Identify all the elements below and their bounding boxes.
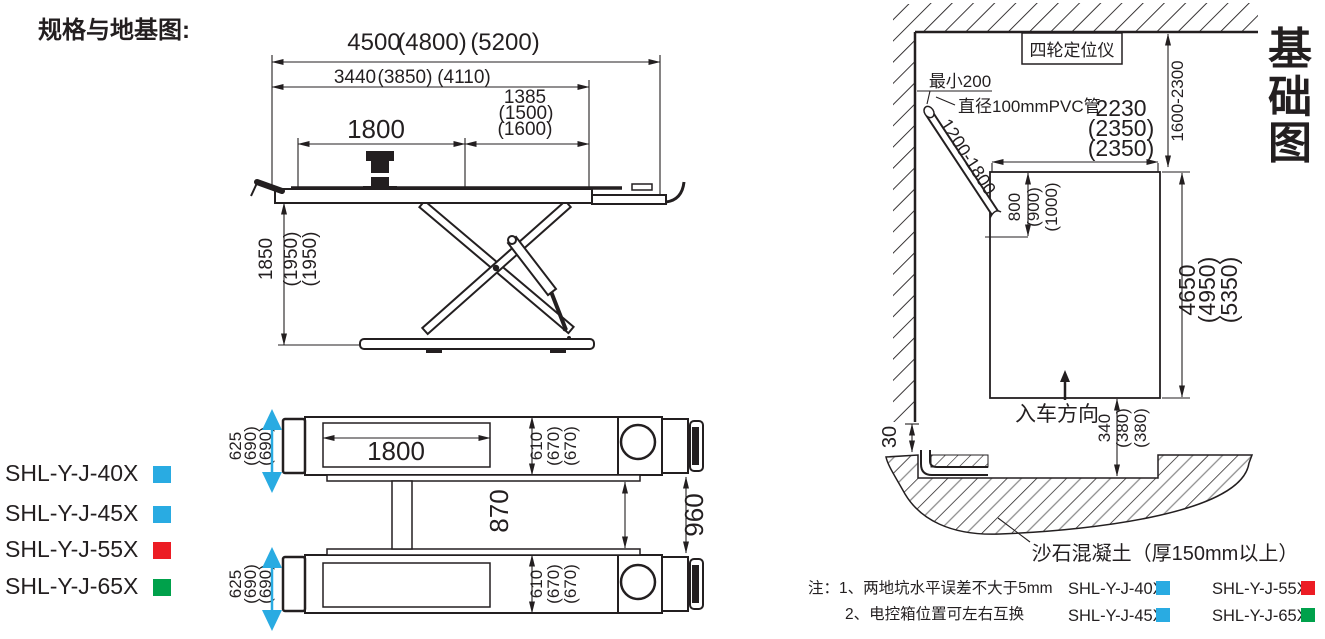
wheel-aligner-label: 四轮定位仪	[1030, 41, 1115, 60]
notes: 注：1、两地坑水平误差不大于5mm 2、电控箱位置可左右互换	[808, 579, 1053, 623]
foundation-title: 基 础 图	[1268, 25, 1312, 168]
dim-inner-gap: 870	[484, 489, 514, 532]
page-title: 规格与地基图:	[38, 17, 190, 44]
model-color-swatch	[153, 579, 171, 596]
foundation-view: 四轮定位仪 1200-1800 最小200 直径100mmPVC管 2230 (…	[808, 3, 1315, 625]
dim-platform-length: 1800	[347, 114, 405, 144]
dim-step: 30	[879, 426, 901, 448]
legend-label: SHL-Y-J-40X	[1068, 580, 1164, 598]
lift-cylinder-port	[621, 425, 655, 459]
legend-swatch	[1156, 608, 1170, 622]
right-approach-ramp	[592, 182, 684, 204]
dim-outer-gap: 960	[679, 493, 709, 536]
dim-pipe-drop-base: 800	[1005, 193, 1024, 221]
side-view: 4500 (4800) (5200) 3440 (3850) (4110) 13…	[251, 29, 684, 353]
embedded-duct-cover	[931, 455, 988, 467]
concrete-section	[886, 450, 1252, 542]
legend-swatch	[1301, 581, 1315, 595]
dim-height-var2: (1950)	[300, 232, 321, 287]
dim-pit-width-var2: (2350)	[1088, 135, 1154, 161]
legend-swatch	[1156, 581, 1170, 595]
dim-overall-var1: (4800)	[397, 29, 466, 56]
dim-overall-base: 4500	[347, 29, 400, 56]
pvc-pipe-label: 直径100mmPVC管	[958, 97, 1101, 116]
entry-direction-arrow-icon	[1060, 370, 1070, 400]
plan-platform-bottom	[283, 555, 703, 613]
legend-label: SHL-Y-J-45X	[1068, 607, 1164, 625]
pipe-length-range: 1200-1800	[936, 115, 1000, 198]
model-label: SHL-Y-J-45X	[5, 500, 138, 526]
dim-pit-length-var2: (5350)	[1216, 257, 1242, 323]
model-color-swatch	[153, 466, 171, 483]
platform-slab	[275, 189, 592, 203]
model-color-swatch	[153, 542, 171, 559]
dim-overall-var2: (5200)	[470, 29, 539, 56]
dim-pit-to-trench-var1: (380)	[1113, 408, 1132, 448]
plan-platform-top	[283, 417, 703, 475]
dim-pit-to-trench-base: 340	[1095, 414, 1114, 442]
dim-ramp-var2: (1600)	[498, 119, 553, 140]
model-list: SHL-Y-J-40X SHL-Y-J-45X SHL-Y-J-55X SHL-…	[5, 460, 171, 599]
dim-frame-base: 3440	[334, 67, 376, 88]
legend-label: SHL-Y-J-55X	[1212, 580, 1308, 598]
model-color-swatch	[153, 506, 171, 523]
svg-text:图: 图	[1268, 119, 1312, 168]
base-frame	[360, 339, 594, 349]
svg-text:基: 基	[1268, 25, 1312, 74]
center-pivot	[493, 265, 499, 271]
ceiling-wall-hatch	[915, 3, 1258, 32]
base-rail	[327, 549, 640, 555]
model-label: SHL-Y-J-65X	[5, 573, 138, 599]
note-line-2: 2、电控箱位置可左右互换	[845, 605, 1025, 623]
dim-track-width-bottom-var1: (670)	[561, 564, 580, 604]
entry-direction-label: 入车方向	[1015, 403, 1099, 426]
model-label: SHL-Y-J-55X	[5, 536, 138, 562]
base-rail	[327, 475, 640, 481]
min-clearance-label: 最小200	[929, 72, 991, 91]
dim-frame-var2: (4110)	[437, 67, 491, 88]
lift-cylinder-port	[621, 565, 655, 599]
center-column	[392, 481, 412, 549]
model-label: SHL-Y-J-40X	[5, 460, 138, 486]
cylinder-pivot	[508, 236, 516, 244]
dim-pipe-drop-var2: (1000)	[1042, 182, 1061, 231]
legend-swatch	[1301, 608, 1315, 622]
foundation-legend: SHL-Y-J-40X SHL-Y-J-55X SHL-Y-J-45X SHL-…	[1068, 580, 1315, 625]
concrete-label: 沙石混凝土（厚150mm以上）	[1032, 542, 1299, 565]
dim-frame-var1: (3850)	[378, 67, 433, 88]
note-line-1: 注：1、两地坑水平误差不大于5mm	[808, 579, 1053, 597]
dim-platform-length-plan: 1800	[367, 436, 425, 466]
dim-height-base: 1850	[256, 238, 277, 280]
plan-view: 1800 870 960 625 (690) (690) 625 (690) (…	[226, 409, 709, 631]
dim-pipe-drop-var1: (900)	[1024, 187, 1043, 227]
side-wall-hatch	[893, 4, 915, 422]
legend-label: SHL-Y-J-65X	[1212, 607, 1308, 625]
dim-track-width-top-var1: (670)	[561, 426, 580, 466]
svg-text:础: 础	[1268, 73, 1312, 122]
dim-height-var1: (1950)	[281, 232, 302, 287]
dim-wall-range: 1600-2300	[1168, 60, 1187, 141]
wheel-stop-post	[363, 151, 397, 190]
spec-foundation-drawing: 规格与地基图: 4500 (4800) (5200) 3440 (3850) (…	[0, 0, 1325, 639]
dim-pit-to-trench-var2: (380)	[1131, 408, 1150, 448]
